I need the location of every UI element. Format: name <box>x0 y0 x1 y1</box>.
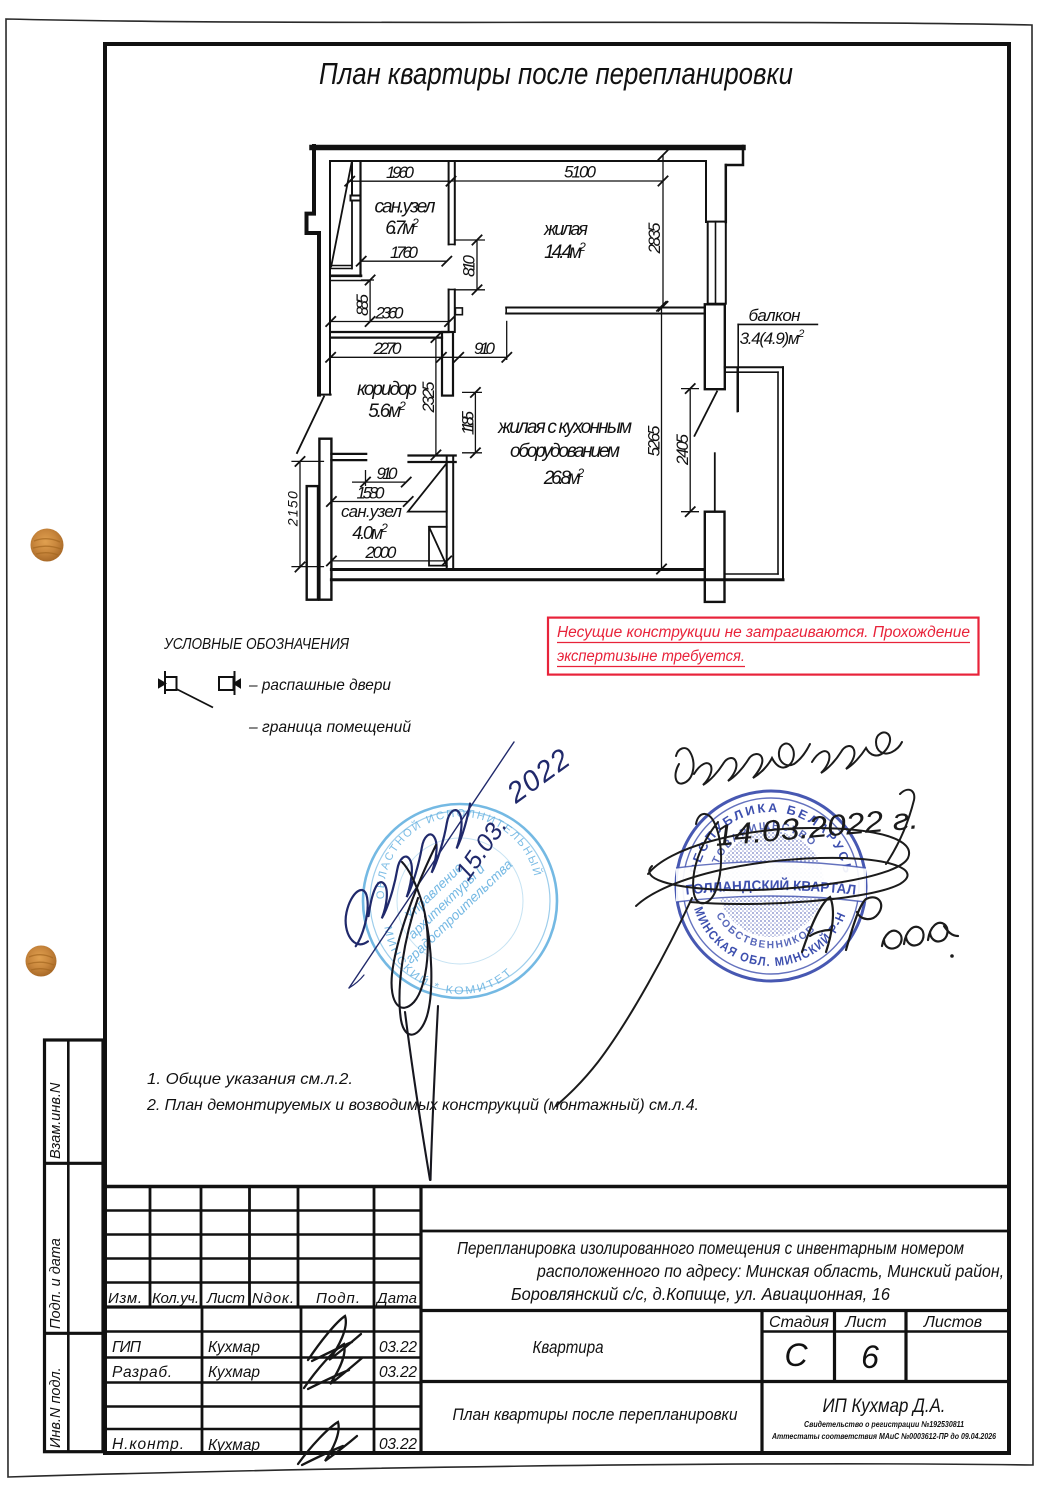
svg-text:Н.контр.: Н.контр. <box>112 1436 184 1453</box>
svg-text:1185: 1185 <box>459 410 478 435</box>
svg-text:03.22: 03.22 <box>379 1339 417 1356</box>
svg-text:2360: 2360 <box>375 304 405 323</box>
svg-text:5100: 5100 <box>564 163 597 182</box>
svg-text:2325: 2325 <box>419 381 438 414</box>
svg-text:Nдок.: Nдок. <box>252 1290 294 1307</box>
svg-text:5.6м2: 5.6м2 <box>368 399 406 422</box>
svg-text:жилая с кухонным: жилая с кухонным <box>497 417 632 438</box>
svg-text:1960: 1960 <box>386 163 415 182</box>
svg-text:расположенного по адресу: Минс: расположенного по адресу: Минская област… <box>536 1261 1004 1281</box>
svg-text:Изм.: Изм. <box>108 1290 142 1307</box>
svg-text:26.8м2: 26.8м2 <box>543 466 585 489</box>
svg-text:Дата: Дата <box>375 1290 417 1307</box>
svg-text:885: 885 <box>353 293 372 316</box>
svg-text:Листов: Листов <box>923 1314 982 1331</box>
svg-text:оборудованием: оборудованием <box>510 441 620 462</box>
svg-text:экспертизыне требуется.: экспертизыне требуется. <box>557 648 745 665</box>
svg-text:Разраб.: Разраб. <box>112 1364 172 1381</box>
svg-text:Свидетельство о регистрации №1: Свидетельство о регистрации №192530811 <box>804 1419 964 1429</box>
svg-text:балкон: балкон <box>749 306 802 325</box>
svg-text:03.22: 03.22 <box>379 1436 417 1453</box>
svg-text:810: 810 <box>460 254 479 277</box>
svg-text:2. План демонтируемых и возвод: 2. План демонтируемых и возводимых конст… <box>146 1097 699 1114</box>
svg-text:– распашные двери: – распашные двери <box>248 677 391 694</box>
svg-text:ГИП: ГИП <box>112 1339 142 1356</box>
svg-text:Аттестаты соответствия МАиС №0: Аттестаты соответствия МАиС №0003612-ПР … <box>771 1431 996 1441</box>
svg-text:2000: 2000 <box>364 543 397 562</box>
svg-text:С: С <box>784 1337 808 1373</box>
svg-text:ИП Кухмар Д.А.: ИП Кухмар Д.А. <box>823 1395 946 1417</box>
svg-text:Кухмар: Кухмар <box>208 1339 260 1356</box>
svg-text:1580: 1580 <box>357 484 386 503</box>
svg-text:6: 6 <box>861 1339 879 1375</box>
svg-text:5265: 5265 <box>645 425 664 457</box>
svg-text:Кухмар: Кухмар <box>208 1364 260 1381</box>
svg-text:910: 910 <box>474 339 496 358</box>
svg-text:4.0м2: 4.0м2 <box>352 521 388 543</box>
svg-text:Лист: Лист <box>844 1314 886 1331</box>
svg-text:План квартиры после перепланир: План квартиры после перепланировки <box>453 1405 738 1424</box>
svg-text:6.7м2: 6.7м2 <box>385 216 419 239</box>
svg-text:Боровлянский с/с, д.Копище, ул: Боровлянский с/с, д.Копище, ул. Авиацион… <box>511 1284 890 1304</box>
svg-text:3.4(4.9)м2: 3.4(4.9)м2 <box>740 328 805 348</box>
svg-text:коридор: коридор <box>357 379 417 400</box>
svg-text:03.22: 03.22 <box>379 1364 417 1381</box>
svg-text:Подп. и дата: Подп. и дата <box>48 1238 64 1329</box>
svg-text:Несущие конструкции не затраги: Несущие конструкции не затрагиваются. Пр… <box>557 624 970 641</box>
svg-text:Кол.уч.: Кол.уч. <box>152 1290 199 1307</box>
svg-text:2835: 2835 <box>645 222 664 255</box>
svg-text:Подп.: Подп. <box>316 1290 360 1307</box>
svg-text:Лист: Лист <box>206 1290 245 1307</box>
svg-text:жилая: жилая <box>543 219 588 239</box>
svg-text:УСЛОВНЫЕ ОБОЗНАЧЕНИЯ: УСЛОВНЫЕ ОБОЗНАЧЕНИЯ <box>163 636 349 653</box>
svg-text:Взам.инв.N: Взам.инв.N <box>48 1082 64 1159</box>
svg-text:910: 910 <box>377 464 399 483</box>
svg-text:Квартира: Квартира <box>533 1337 604 1357</box>
svg-text:2270: 2270 <box>373 339 403 358</box>
svg-text:2405: 2405 <box>673 433 692 466</box>
svg-text:14.4м2: 14.4м2 <box>544 240 586 263</box>
svg-text:Перепланировка изолированного: Перепланировка изолированного помещения … <box>457 1238 964 1258</box>
svg-text:сан.узел: сан.узел <box>341 502 402 521</box>
svg-text:Инв.N подл.: Инв.N подл. <box>48 1367 64 1448</box>
svg-text:– граница помещений: – граница помещений <box>248 719 411 736</box>
svg-text:План квартиры после перепланир: План квартиры после перепланировки <box>319 56 793 91</box>
svg-text:Стадия: Стадия <box>769 1314 829 1331</box>
svg-text:сан.узел: сан.узел <box>375 197 436 218</box>
svg-text:1760: 1760 <box>390 243 419 262</box>
svg-text:1. Общие указания см.л.2.: 1. Общие указания см.л.2. <box>147 1071 353 1088</box>
svg-text:Кухмар: Кухмар <box>208 1437 260 1454</box>
